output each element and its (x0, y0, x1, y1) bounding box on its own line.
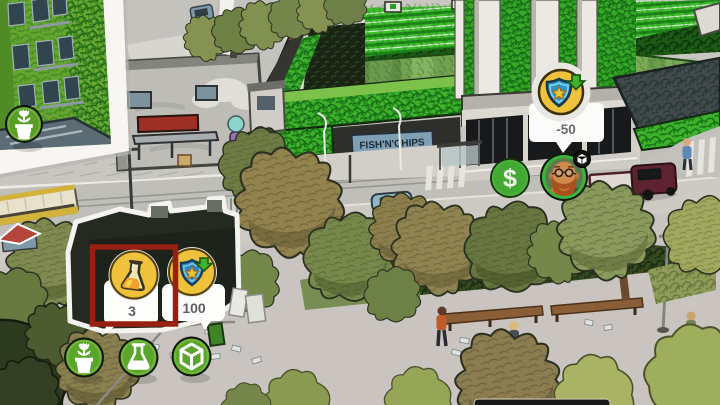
svg-text:-50: -50 (556, 122, 576, 137)
svg-text:$: $ (503, 165, 517, 193)
svg-text:100: 100 (182, 300, 206, 316)
svg-text:3: 3 (128, 303, 136, 319)
